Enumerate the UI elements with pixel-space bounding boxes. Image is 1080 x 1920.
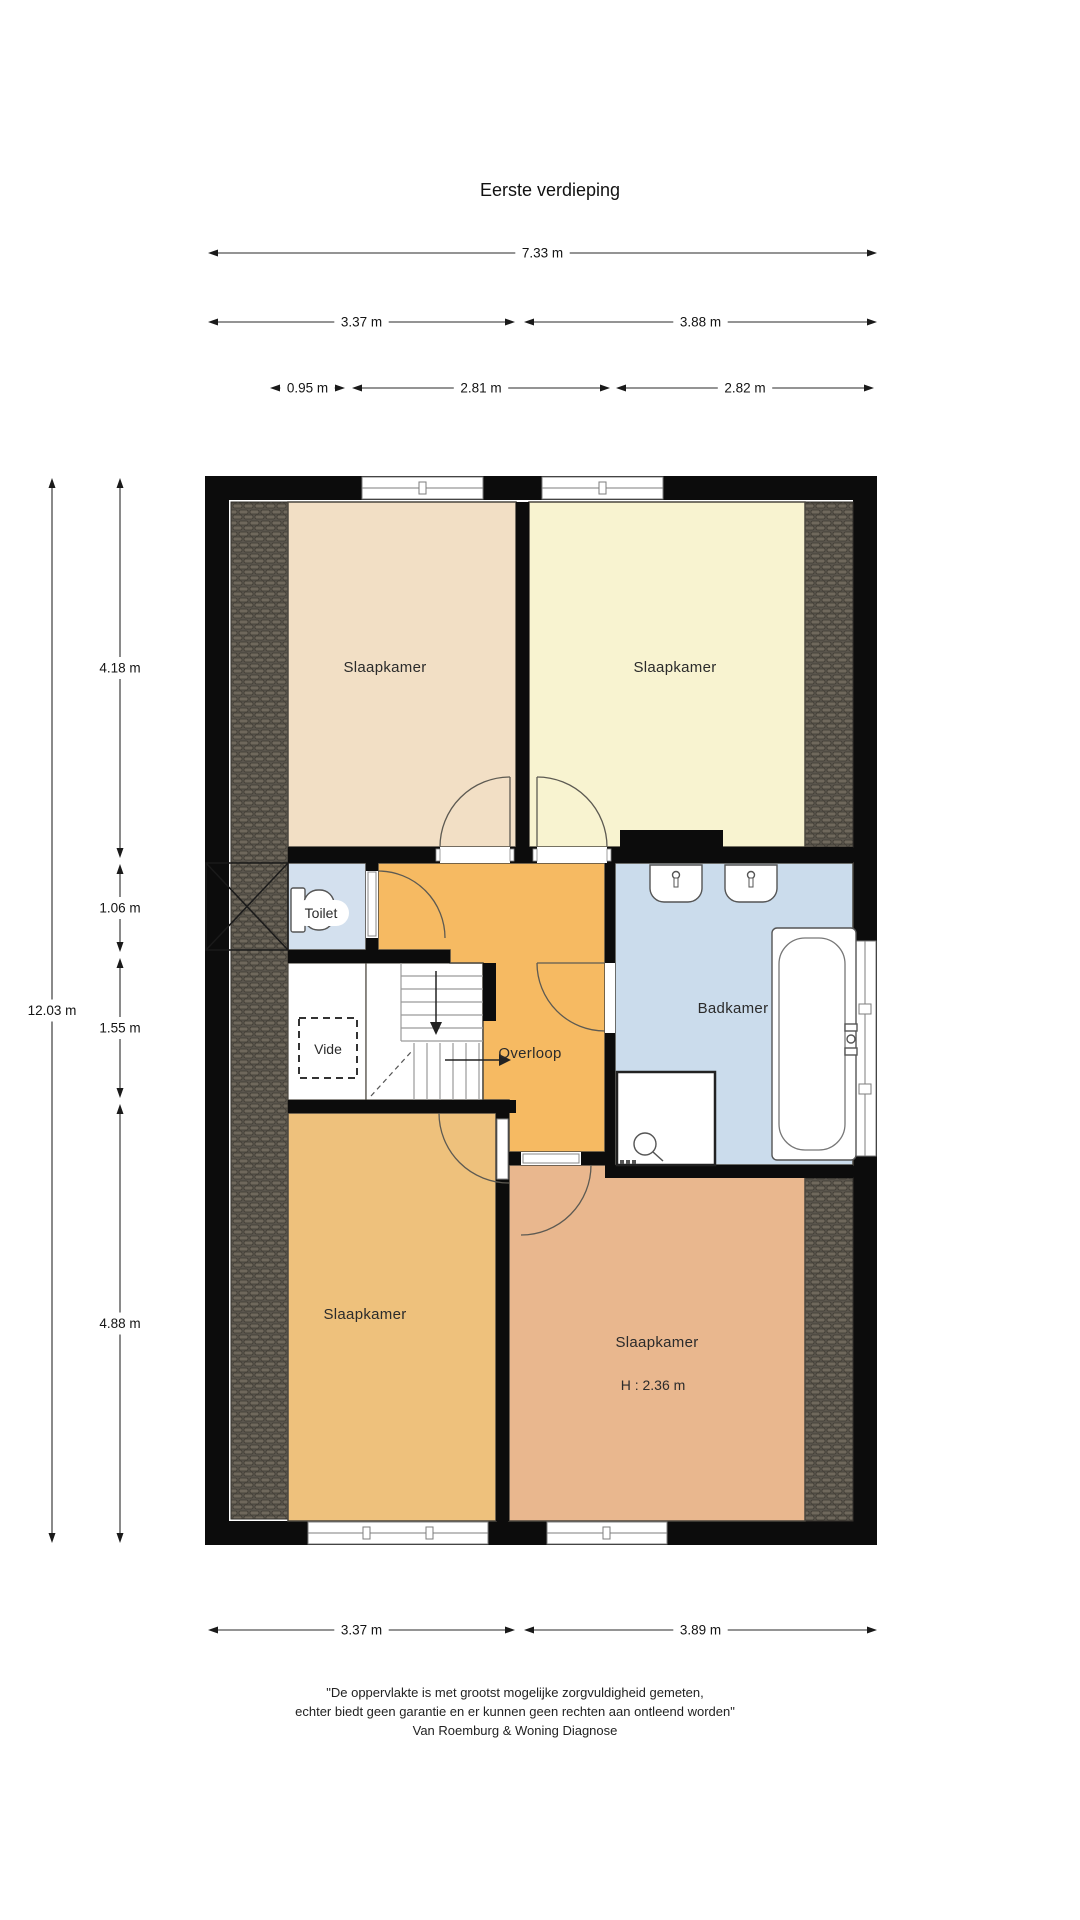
dimension-label: 3.37 m bbox=[341, 315, 382, 330]
dimension-label: 0.95 m bbox=[287, 381, 328, 396]
shower bbox=[617, 1072, 715, 1165]
label-overloop: Overloop bbox=[498, 1045, 561, 1062]
dimension-left_seg3: 1.55 m bbox=[99, 958, 140, 1098]
floorplan-canvas: Eerste verdieping 7.33 m3.37 m3.88 m0.95… bbox=[0, 0, 1080, 1920]
dimension-bottom_right: 3.89 m bbox=[524, 1623, 877, 1638]
label-bedroom-top-left: Slaapkamer bbox=[343, 659, 426, 676]
dimension-left_total: 12.03 m bbox=[28, 478, 77, 1543]
label-bedroom-top-right: Slaapkamer bbox=[633, 659, 716, 676]
dimension-label: 7.33 m bbox=[522, 246, 563, 261]
label-toilet: Toilet bbox=[305, 905, 338, 921]
sink-2 bbox=[725, 865, 777, 902]
dimension-label: 4.18 m bbox=[99, 661, 140, 676]
dimension-top_sub1: 0.95 m bbox=[270, 381, 345, 396]
roof-slope-strip-right-bottom bbox=[805, 1178, 853, 1521]
floorplan: Slaapkamer Slaapkamer Toilet Vide Overlo… bbox=[205, 476, 877, 1545]
wall-b bbox=[288, 950, 450, 963]
dimension-label: 3.88 m bbox=[680, 315, 721, 330]
wall-c bbox=[288, 1100, 516, 1113]
chimney-block bbox=[620, 830, 723, 863]
wall-stairs-landing bbox=[483, 963, 496, 1021]
disclaimer-line2: echter biedt geen garantie en er kunnen … bbox=[295, 1704, 735, 1719]
dimension-label: 3.37 m bbox=[341, 1623, 382, 1638]
dimension-left_seg2: 1.06 m bbox=[99, 864, 140, 952]
page-title: Eerste verdieping bbox=[480, 180, 620, 200]
dimension-label: 12.03 m bbox=[28, 1003, 77, 1018]
dimension-top_total: 7.33 m bbox=[208, 246, 877, 261]
label-bedroom-bottom-right: Slaapkamer bbox=[615, 1334, 698, 1351]
dimension-label: 1.55 m bbox=[99, 1021, 140, 1036]
disclaimer-line3: Van Roemburg & Woning Diagnose bbox=[413, 1723, 618, 1738]
dimension-label: 2.82 m bbox=[724, 381, 765, 396]
dimension-label: 2.81 m bbox=[460, 381, 501, 396]
dimension-bottom_left: 3.37 m bbox=[208, 1623, 515, 1638]
disclaimer: "De oppervlakte is met grootst mogelijke… bbox=[295, 1685, 735, 1738]
dimension-top_sub3: 2.82 m bbox=[616, 381, 874, 396]
bathtub bbox=[772, 928, 857, 1160]
dimension-top_sub2: 2.81 m bbox=[352, 381, 610, 396]
label-badkamer: Badkamer bbox=[698, 1000, 769, 1017]
floorplan-page: Eerste verdieping 7.33 m3.37 m3.88 m0.95… bbox=[0, 0, 1080, 1920]
label-vide: Vide bbox=[314, 1041, 342, 1057]
roof-slope-strip-left bbox=[231, 502, 288, 1519]
roof-slope-strip-right-top bbox=[805, 502, 853, 847]
dimension-top_right: 3.88 m bbox=[524, 315, 877, 330]
wall-badkamer-bottom bbox=[605, 1165, 853, 1178]
wall-center-top bbox=[516, 502, 529, 847]
label-bedroom-bottom-left: Slaapkamer bbox=[323, 1306, 406, 1323]
dimension-label: 4.88 m bbox=[99, 1316, 140, 1331]
dimension-top_left: 3.37 m bbox=[208, 315, 515, 330]
window-bottom-2 bbox=[547, 1522, 667, 1544]
dimension-label: 1.06 m bbox=[99, 901, 140, 916]
label-bedroom-br-height: H : 2.36 m bbox=[621, 1377, 686, 1393]
dimension-left_seg1: 4.18 m bbox=[99, 478, 140, 858]
dimension-label: 3.89 m bbox=[680, 1623, 721, 1638]
sink-1 bbox=[650, 865, 702, 902]
window-bottom-1 bbox=[308, 1522, 488, 1544]
dimension-left_seg4: 4.88 m bbox=[99, 1104, 140, 1543]
window-top-2 bbox=[542, 477, 663, 499]
window-top-1 bbox=[362, 477, 483, 499]
disclaimer-line1: "De oppervlakte is met grootst mogelijke… bbox=[326, 1685, 703, 1700]
